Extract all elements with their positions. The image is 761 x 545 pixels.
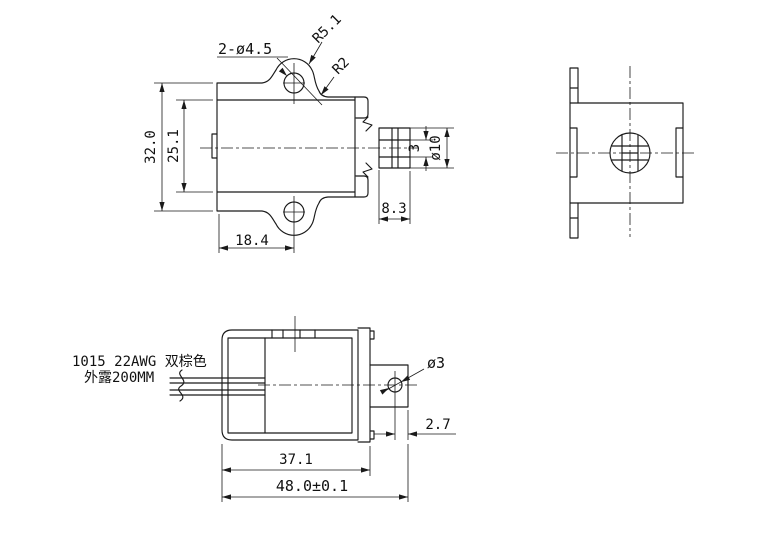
side-top-tab xyxy=(570,68,578,103)
dim-83-arrow-right xyxy=(401,216,410,221)
dim-371-arrow-right xyxy=(361,467,370,472)
dim-32-arrow-top xyxy=(159,83,164,92)
dim-plunger-extension: 8.3 xyxy=(381,201,406,217)
front-left-tab xyxy=(212,134,217,158)
hole-callout-leader xyxy=(217,57,322,105)
r51-arrow xyxy=(309,55,316,64)
r2-label: R2 xyxy=(330,55,353,78)
d3-arrow-lower xyxy=(380,388,389,395)
hole-callout-label: 2-ø4.5 xyxy=(218,40,272,58)
dim-27-arrow-left xyxy=(386,431,395,436)
dim-slot-width: 3 xyxy=(407,144,423,152)
dim-plunger-diameter: ø10 xyxy=(428,135,444,160)
dim-48-arrow-right xyxy=(399,494,408,499)
front-top-break-line xyxy=(363,117,372,131)
drawing-sheet: 32.0 25.1 18.4 8.3 3 ø10 2-ø4.5 R5.1 R2 xyxy=(0,0,761,545)
dim-32-arrow-bottom xyxy=(159,202,164,211)
bottom-view: 1015 22AWG 双棕色 外露200MM ø3 2.7 37.1 48.0±… xyxy=(72,316,456,502)
dim-48-arrow-left xyxy=(222,494,231,499)
dim-d10-arrow-bottom xyxy=(444,159,449,168)
side-view xyxy=(556,66,696,238)
bottom-top-slot-ticks xyxy=(272,330,315,338)
engineering-drawing: 32.0 25.1 18.4 8.3 3 ø10 2-ø4.5 R5.1 R2 xyxy=(0,0,761,545)
front-view: 32.0 25.1 18.4 8.3 3 ø10 2-ø4.5 R5.1 R2 xyxy=(143,12,454,253)
dim-inner-height: 25.1 xyxy=(166,129,182,163)
front-bottom-break-line xyxy=(363,163,372,177)
r2-arrow xyxy=(321,86,329,95)
dim-83-arrow-left xyxy=(379,216,388,221)
lead-wires xyxy=(170,378,265,395)
dim-251-arrow-top xyxy=(181,100,186,109)
side-bottom-tab xyxy=(570,203,578,238)
dim-pin-hole-diameter: ø3 xyxy=(427,354,445,372)
dim-251-arrow-bottom xyxy=(181,183,186,192)
wire-spec-line1: 1015 22AWG 双棕色 xyxy=(72,353,207,370)
hole-callout-arrow xyxy=(279,68,287,76)
dim-overall-length: 48.0±0.1 xyxy=(276,477,348,495)
dim-371-arrow-left xyxy=(222,467,231,472)
wire-spec-line2: 外露200MM xyxy=(84,370,154,386)
front-bottom-right-tab xyxy=(355,176,368,197)
front-bottom-hole-centerlines xyxy=(283,196,305,253)
wire-break-mark xyxy=(179,370,184,401)
d3-arrow-upper xyxy=(401,375,410,382)
dim-d10-arrow-top xyxy=(444,128,449,137)
front-outline xyxy=(217,59,355,236)
dim-184-arrow-right xyxy=(285,245,294,250)
front-top-right-tab xyxy=(355,97,368,118)
dim-184-arrow-left xyxy=(219,245,228,250)
r51-label: R5.1 xyxy=(310,12,345,47)
bottom-body-inner xyxy=(228,338,352,433)
dim-body-length: 37.1 xyxy=(279,452,313,468)
dim-hole-offset: 18.4 xyxy=(235,233,269,249)
dim-hole-to-tip: 2.7 xyxy=(425,417,450,433)
dim-27-arrow-right xyxy=(408,431,417,436)
dim-overall-height: 32.0 xyxy=(143,130,159,164)
